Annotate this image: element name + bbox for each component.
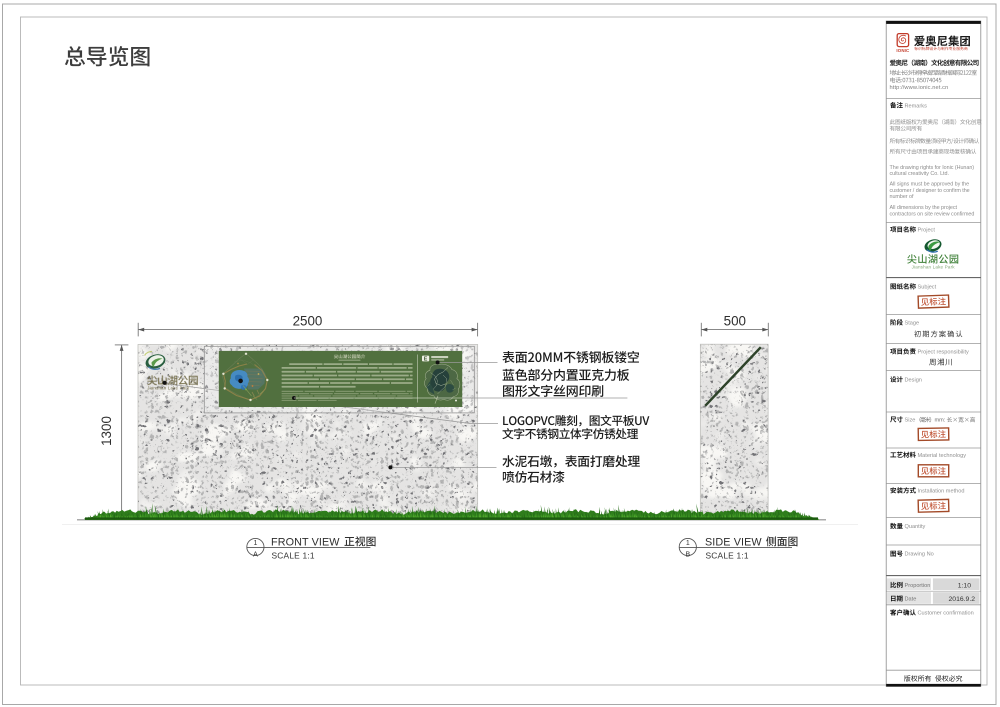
svg-text:SIDE VIEW: SIDE VIEW bbox=[705, 536, 762, 548]
svg-text:All dimensions by the project: All dimensions by the project bbox=[890, 205, 958, 211]
svg-text:mm:: mm: bbox=[935, 418, 946, 424]
svg-text:1300: 1300 bbox=[99, 416, 114, 446]
svg-text:SCALE 1:1: SCALE 1:1 bbox=[706, 551, 749, 561]
svg-text:Stage: Stage bbox=[905, 321, 920, 327]
svg-text:number of: number of bbox=[890, 194, 914, 200]
svg-text:2016.9.2: 2016.9.2 bbox=[949, 596, 976, 603]
svg-text:cultural creativity Co. Ltd.: cultural creativity Co. Ltd. bbox=[890, 171, 949, 177]
svg-text:Project responsibility: Project responsibility bbox=[918, 350, 970, 356]
svg-text:E: E bbox=[424, 356, 428, 362]
svg-text:Date: Date bbox=[905, 597, 917, 603]
svg-text:500: 500 bbox=[724, 314, 746, 329]
svg-text:All signs must be approved by: All signs must be approved by the bbox=[890, 182, 970, 188]
svg-text:Jianshan Lake Park: Jianshan Lake Park bbox=[912, 265, 956, 270]
svg-text:The drawing rights for Ionic (: The drawing rights for Ionic (Hunan) bbox=[890, 165, 975, 171]
svg-text:1: 1 bbox=[686, 540, 690, 547]
svg-text:Material technology: Material technology bbox=[918, 453, 967, 459]
svg-text:2500: 2500 bbox=[293, 314, 323, 329]
svg-text:Subject: Subject bbox=[918, 285, 937, 291]
svg-text:1: 1 bbox=[253, 540, 257, 547]
svg-text:1:10: 1:10 bbox=[958, 583, 971, 590]
svg-text:Customer confirmation: Customer confirmation bbox=[918, 611, 974, 617]
svg-text:Remarks: Remarks bbox=[905, 103, 928, 109]
svg-text:contractors on site review con: contractors on site review confirmed bbox=[890, 211, 975, 217]
svg-text:http://www.ionic.net.cn: http://www.ionic.net.cn bbox=[890, 85, 949, 91]
svg-text:FRONT VIEW: FRONT VIEW bbox=[271, 536, 340, 548]
svg-text:Drawing No: Drawing No bbox=[905, 552, 934, 558]
svg-text:Installation method: Installation method bbox=[918, 489, 965, 495]
svg-text:Jianshan Lake Park: Jianshan Lake Park bbox=[147, 386, 190, 391]
svg-text:Design: Design bbox=[905, 378, 922, 384]
svg-text:Project: Project bbox=[918, 228, 936, 234]
svg-text:Size: Size bbox=[905, 418, 916, 424]
svg-text:IONIC: IONIC bbox=[896, 48, 910, 53]
svg-text:A: A bbox=[253, 551, 258, 558]
svg-text:B: B bbox=[685, 551, 690, 558]
svg-text:Quantity: Quantity bbox=[905, 524, 926, 530]
svg-text:customer / designer to confirm: customer / designer to confirm the bbox=[890, 188, 970, 194]
svg-text:SCALE 1:1: SCALE 1:1 bbox=[272, 551, 315, 561]
svg-text:Proportion: Proportion bbox=[905, 583, 931, 589]
